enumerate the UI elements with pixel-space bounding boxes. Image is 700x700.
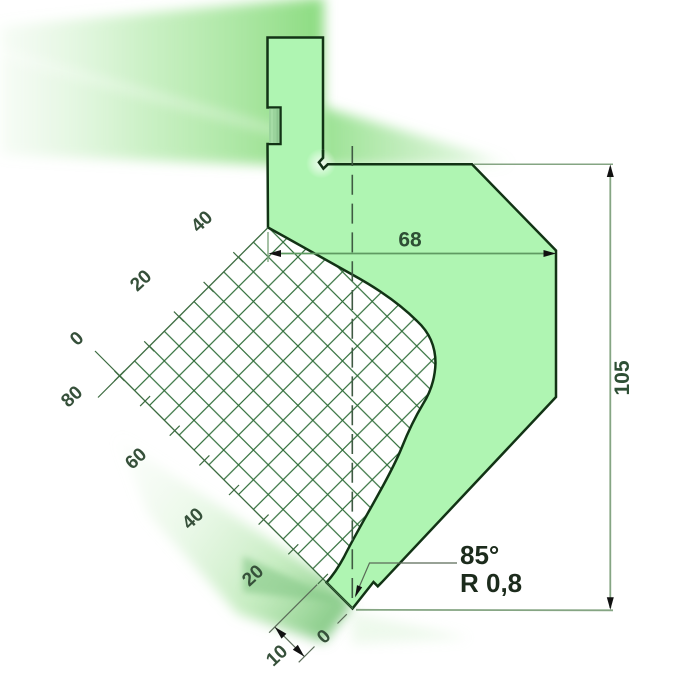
- svg-text:68: 68: [398, 229, 422, 252]
- svg-text:85°: 85°: [460, 540, 499, 570]
- svg-text:R 0,8: R 0,8: [460, 568, 522, 598]
- svg-text:105: 105: [611, 360, 634, 395]
